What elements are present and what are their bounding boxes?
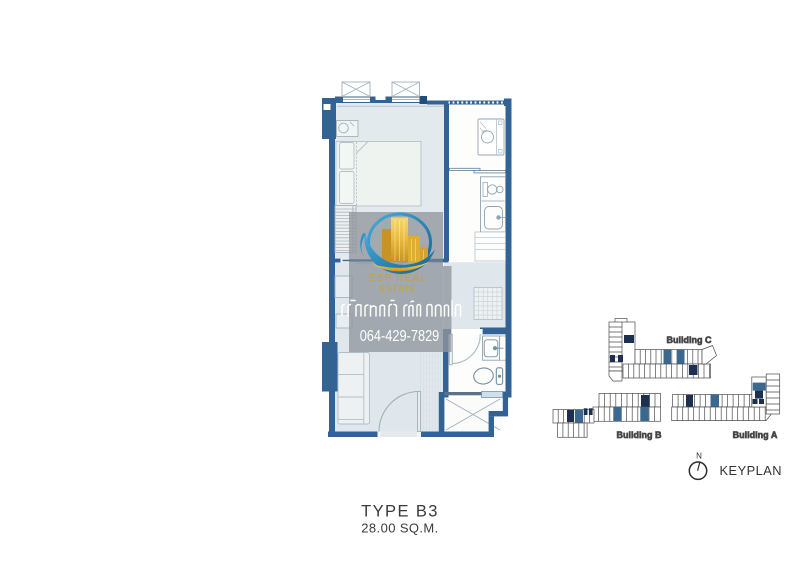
svg-text:Building A: Building A (733, 430, 778, 440)
svg-text:N: N (696, 452, 702, 461)
svg-text:Building B: Building B (617, 430, 662, 440)
svg-text:KEYPLAN: KEYPLAN (720, 463, 783, 478)
svg-text:064-429-7829: 064-429-7829 (360, 328, 440, 346)
svg-text:ESTATE: ESTATE (380, 283, 417, 293)
svg-text:TYPE B3: TYPE B3 (361, 503, 439, 521)
svg-text:28.00 SQ.M.: 28.00 SQ.M. (361, 521, 438, 536)
svg-text:Building C: Building C (667, 335, 712, 345)
